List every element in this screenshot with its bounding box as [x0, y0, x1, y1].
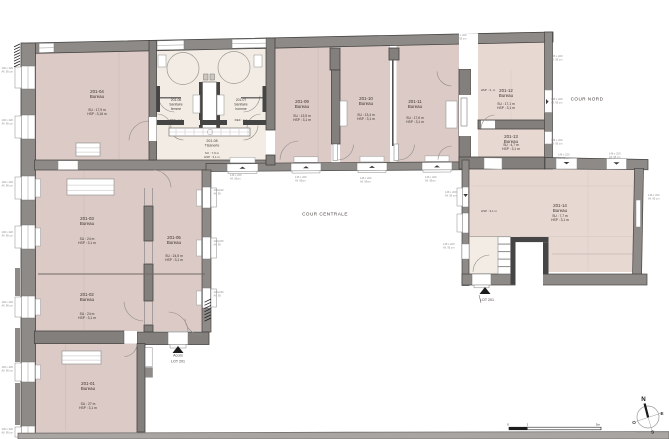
svg-text:All. 95 cm: All. 95 cm — [2, 368, 13, 372]
svg-text:146 x 220: 146 x 220 — [551, 54, 563, 58]
svg-text:146 x 220: 146 x 220 — [445, 190, 457, 194]
svg-text:All. 95 cm: All. 95 cm — [648, 196, 659, 200]
svg-text:All. 95: All. 95 — [214, 293, 222, 297]
svg-text:HSP : 3,1 m: HSP : 3,1 m — [78, 241, 96, 245]
svg-text:All. 95cm: All. 95cm — [360, 179, 371, 183]
svg-text:All. 95 cm: All. 95 cm — [558, 156, 569, 160]
svg-text:All. 95 cm: All. 95 cm — [2, 430, 13, 434]
svg-text:Bureau: Bureau — [167, 240, 182, 245]
svg-text:146 x 220: 146 x 220 — [360, 176, 372, 180]
svg-text:All. 95 cm: All. 95 cm — [443, 245, 454, 249]
svg-text:146 x 220: 146 x 220 — [230, 173, 242, 177]
svg-text:LOT 201: LOT 201 — [171, 360, 185, 364]
svg-text:All. 95 cm: All. 95 cm — [455, 36, 466, 40]
svg-text:146 x 220: 146 x 220 — [551, 138, 563, 142]
svg-text:201-06: 201-06 — [171, 98, 182, 102]
svg-text:Bureau: Bureau — [499, 93, 514, 98]
svg-text:Bureau: Bureau — [408, 104, 423, 109]
svg-text:All. 95 cm: All. 95 cm — [551, 100, 562, 104]
svg-text:0: 0 — [507, 423, 509, 427]
svg-text:146 x 220: 146 x 220 — [2, 66, 14, 70]
svg-text:Accès: Accès — [173, 354, 183, 358]
svg-text:146x220: 146x220 — [214, 188, 225, 192]
svg-text:146 x 220: 146 x 220 — [551, 97, 563, 101]
svg-text:201-08: 201-08 — [206, 139, 217, 143]
svg-text:146 x 220: 146 x 220 — [558, 153, 570, 157]
svg-text:HSP : 3,1 m: HSP : 3,1 m — [357, 117, 375, 121]
svg-text:HSP : 3,1 m: HSP : 3,1 m — [204, 155, 221, 159]
svg-text:All. 95: All. 95 — [214, 242, 222, 246]
svg-text:HSP : 3,16 m: HSP : 3,16 m — [87, 112, 107, 116]
svg-text:Bureau: Bureau — [553, 208, 568, 213]
svg-text:HSP : 3,1 m: HSP : 3,1 m — [497, 106, 515, 110]
svg-text:All. 95 cm: All. 95 cm — [2, 303, 13, 307]
svg-text:HSP : 3,1 m: HSP : 3,1 m — [481, 209, 498, 213]
svg-text:Bureau: Bureau — [81, 386, 96, 391]
svg-text:146x220: 146x220 — [214, 290, 225, 294]
svg-text:All. 95: All. 95 — [214, 191, 222, 195]
svg-text:146 x 220: 146 x 220 — [2, 118, 14, 122]
svg-text:146 x 220: 146 x 220 — [2, 230, 14, 234]
svg-text:146 x 220: 146 x 220 — [455, 33, 467, 37]
svg-text:146 x 220: 146 x 220 — [2, 300, 14, 304]
svg-text:All. 95 cm: All. 95 cm — [445, 193, 456, 197]
svg-text:All. 95 cm: All. 95 cm — [551, 141, 562, 145]
svg-text:REF : 1.1: REF : 1.1 — [170, 118, 183, 122]
svg-text:HSP : 3,1 m: HSP : 3,1 m — [78, 316, 96, 320]
svg-text:HSP : 3,1 m: HSP : 3,1 m — [406, 120, 424, 124]
svg-text:homme: homme — [235, 107, 246, 111]
svg-text:HSP : 3, m: HSP : 3, m — [481, 88, 496, 92]
svg-text:All. 95cm: All. 95cm — [230, 176, 241, 180]
svg-text:All. 95cm: All. 95cm — [425, 178, 436, 182]
svg-text:All. 95 cm: All. 95 cm — [2, 183, 13, 187]
svg-text:Bureau: Bureau — [80, 221, 95, 226]
svg-text:Bureau: Bureau — [80, 297, 95, 302]
svg-text:COUR CENTRALE: COUR CENTRALE — [302, 212, 348, 217]
svg-text:146 x 220: 146 x 220 — [2, 180, 14, 184]
svg-text:HSP : 3,1 m: HSP : 3,1 m — [293, 118, 311, 122]
svg-text:Bureau: Bureau — [90, 94, 105, 99]
svg-text:Bureau: Bureau — [295, 104, 310, 109]
svg-text:201-07: 201-07 — [236, 98, 247, 102]
svg-text:N: N — [641, 396, 646, 403]
svg-text:Tisanerie: Tisanerie — [205, 144, 220, 148]
svg-text:femme: femme — [171, 107, 181, 111]
svg-text:146 x 220: 146 x 220 — [425, 175, 437, 179]
svg-text:All. 95 cm: All. 95 cm — [609, 155, 620, 159]
svg-text:HSP : 3,1 m: HSP : 3,1 m — [551, 218, 569, 222]
svg-text:146 x 220: 146 x 220 — [2, 427, 14, 431]
svg-text:Sanitaire: Sanitaire — [234, 103, 247, 107]
svg-text:LOT 201: LOT 201 — [480, 298, 494, 302]
svg-text:146 x 220: 146 x 220 — [443, 242, 455, 246]
svg-text:All. 95cm: All. 95cm — [295, 178, 306, 182]
svg-text:Bureau: Bureau — [359, 101, 374, 106]
svg-text:5m: 5m — [596, 423, 601, 427]
svg-text:All. 95 cm: All. 95 cm — [2, 69, 13, 73]
svg-text:146x220: 146x220 — [214, 239, 225, 243]
svg-text:S: S — [651, 430, 654, 435]
svg-text:HSP : 3,1 m: HSP : 3,1 m — [502, 147, 520, 151]
svg-text:HSP : 3,1 m: HSP : 3,1 m — [79, 406, 97, 410]
svg-text:146 x 220: 146 x 220 — [295, 175, 307, 179]
svg-text:E: E — [660, 411, 663, 416]
svg-text:O: O — [632, 420, 636, 425]
svg-text:1: 1 — [527, 423, 529, 427]
svg-text:All. 95 cm: All. 95 cm — [551, 57, 562, 61]
svg-text:146 x 220: 146 x 220 — [609, 152, 621, 156]
svg-text:HSP : 3,1 m: HSP : 3,1 m — [165, 258, 183, 262]
svg-text:146 x 220: 146 x 220 — [648, 193, 660, 197]
svg-text:All. 95 cm: All. 95 cm — [2, 233, 13, 237]
svg-text:All. 95 cm: All. 95 cm — [2, 121, 13, 125]
svg-text:146 x 220: 146 x 220 — [2, 365, 14, 369]
svg-text:COUR NORD: COUR NORD — [571, 97, 604, 102]
svg-text:REF : 1.1: REF : 1.1 — [235, 118, 248, 122]
svg-text:Sanitaire: Sanitaire — [169, 103, 182, 107]
